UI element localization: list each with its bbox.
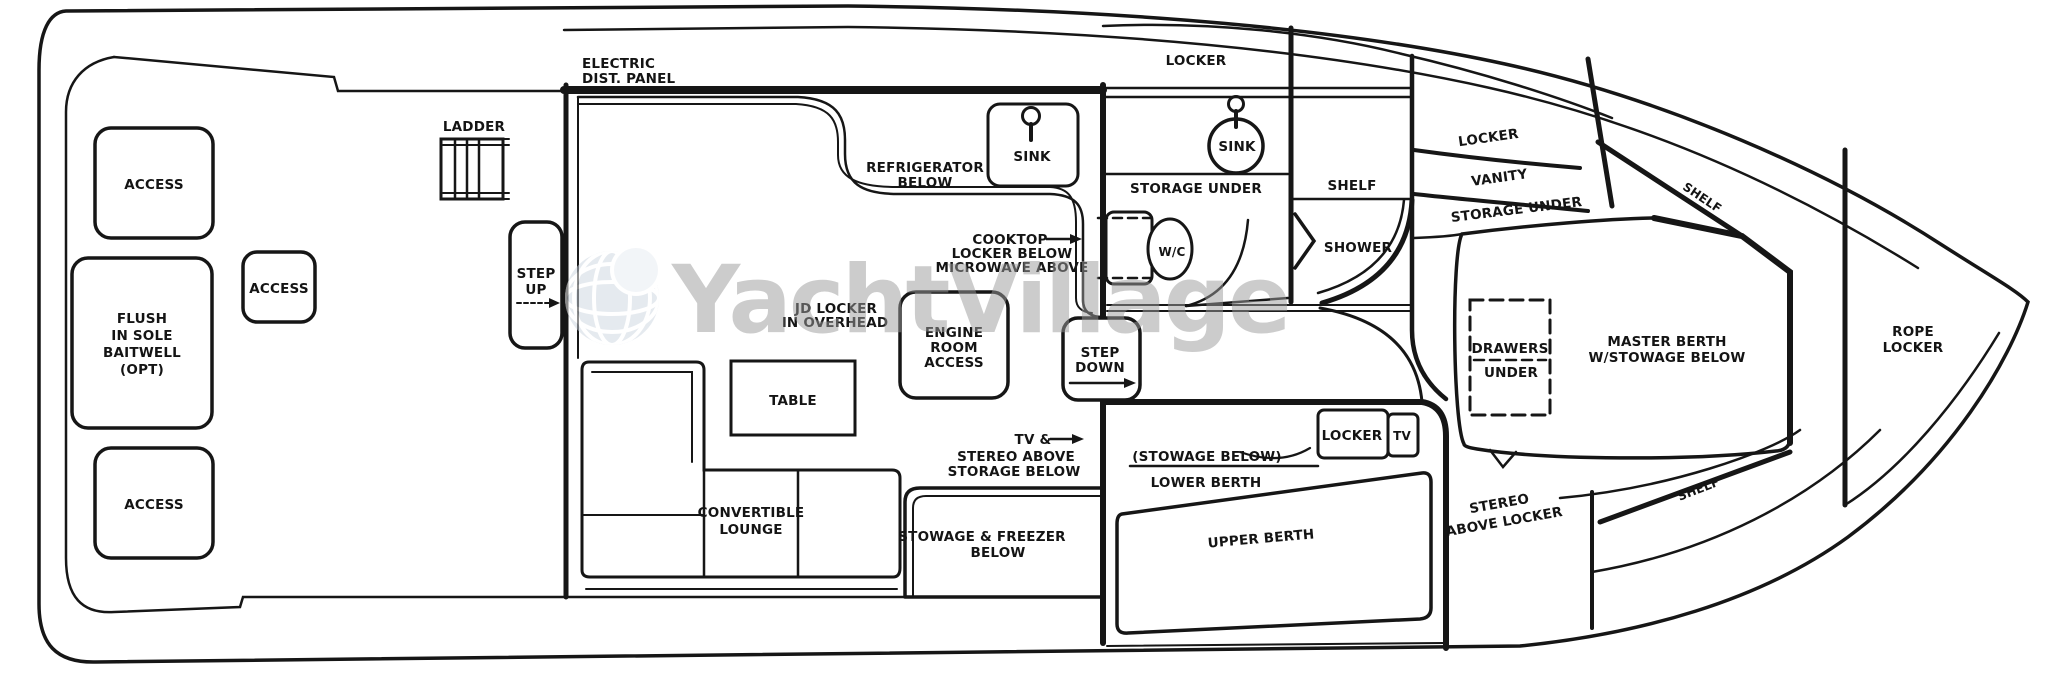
head-locker-label: LOCKER — [1166, 53, 1227, 69]
electric-panel-label-1: ELECTRIC — [582, 56, 655, 72]
rope-locker-label-2: LOCKER — [1883, 340, 1944, 356]
stowage-below-guest-label: (STOWAGE BELOW) — [1132, 449, 1281, 465]
shelf-mid-label: SHELF — [1327, 178, 1376, 194]
stowage-freezer-label-1: STOWAGE & FREEZER — [898, 529, 1066, 545]
step-down-label-2: DOWN — [1075, 360, 1125, 376]
access-mid-label: ACCESS — [249, 281, 309, 297]
watermark-text: YachtVillage — [671, 246, 1289, 355]
step-up-label-2: UP — [525, 282, 546, 298]
refrigerator-label-2: BELOW — [898, 175, 953, 191]
flush-baitwell-label-1: FLUSH — [117, 311, 167, 327]
access-aft-top-label: ACCESS — [124, 177, 184, 193]
flush-baitwell-label-2: IN SOLE — [111, 328, 172, 344]
flush-baitwell-label-3: BAITWELL — [103, 345, 181, 361]
shower-label: SHOWER — [1324, 240, 1393, 256]
lounge-label-2: LOUNGE — [719, 522, 782, 538]
access-aft-bottom-label: ACCESS — [124, 497, 184, 513]
engine-room-label-3: ACCESS — [924, 355, 984, 371]
electric-panel-label-2: DIST. PANEL — [582, 71, 676, 87]
tv-stereo-label-1: TV & — [1015, 432, 1052, 448]
tv-stereo-label-3: STORAGE BELOW — [948, 464, 1081, 480]
drawers-under-label-1: DRAWERS — [1471, 341, 1548, 357]
master-berth-label-1: MASTER BERTH — [1607, 334, 1726, 350]
lower-berth-label: LOWER BERTH — [1151, 475, 1262, 491]
guest-tv-label: TV — [1393, 429, 1411, 443]
drawers-under-label-2: UNDER — [1484, 365, 1538, 381]
guest-locker-label: LOCKER — [1322, 428, 1383, 444]
yacht-floorplan-diagram: ACCESS ACCESS FLUSH IN SOLE BAITWELL (OP… — [0, 0, 2048, 683]
stowage-freezer-label-2: BELOW — [971, 545, 1026, 561]
galley-sink-label: SINK — [1013, 149, 1051, 165]
refrigerator-label-1: REFRIGERATOR — [866, 160, 984, 176]
head-storage-under-label: STORAGE UNDER — [1130, 181, 1262, 197]
galley-sink-box — [988, 104, 1078, 186]
head-sink-label: SINK — [1218, 139, 1256, 155]
watermark: YachtVillage — [565, 244, 1289, 355]
table-label: TABLE — [769, 393, 817, 409]
flush-baitwell-label-4: (OPT) — [120, 362, 164, 378]
step-up-label-1: STEP — [517, 266, 556, 282]
floorplan-page: ACCESS ACCESS FLUSH IN SOLE BAITWELL (OP… — [0, 0, 2048, 683]
lounge-label-1: CONVERTIBLE — [698, 505, 805, 521]
rope-locker-label-1: ROPE — [1892, 324, 1934, 340]
tv-stereo-label-2: STEREO ABOVE — [957, 449, 1075, 465]
ladder-label: LADDER — [443, 119, 506, 135]
master-berth-label-2: W/STOWAGE BELOW — [1589, 350, 1746, 366]
